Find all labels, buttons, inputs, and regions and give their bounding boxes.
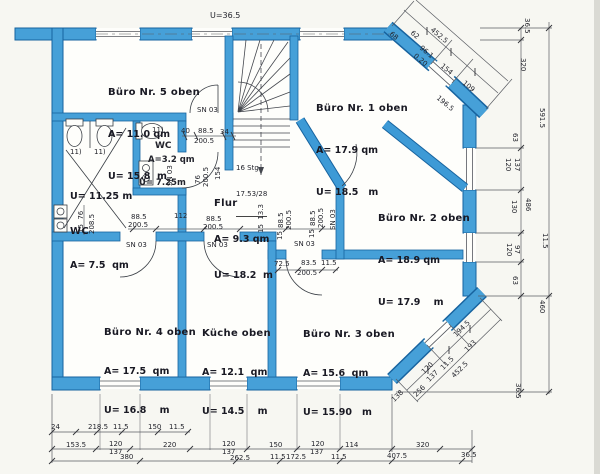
floor-plan-page: U=36.5 Büro Nr. 5 oben A= 11.0 qm U= 15.… [0, 0, 600, 474]
floor-plan-drawing [0, 0, 600, 474]
scan-edge [594, 0, 600, 474]
building-floor [52, 28, 476, 378]
